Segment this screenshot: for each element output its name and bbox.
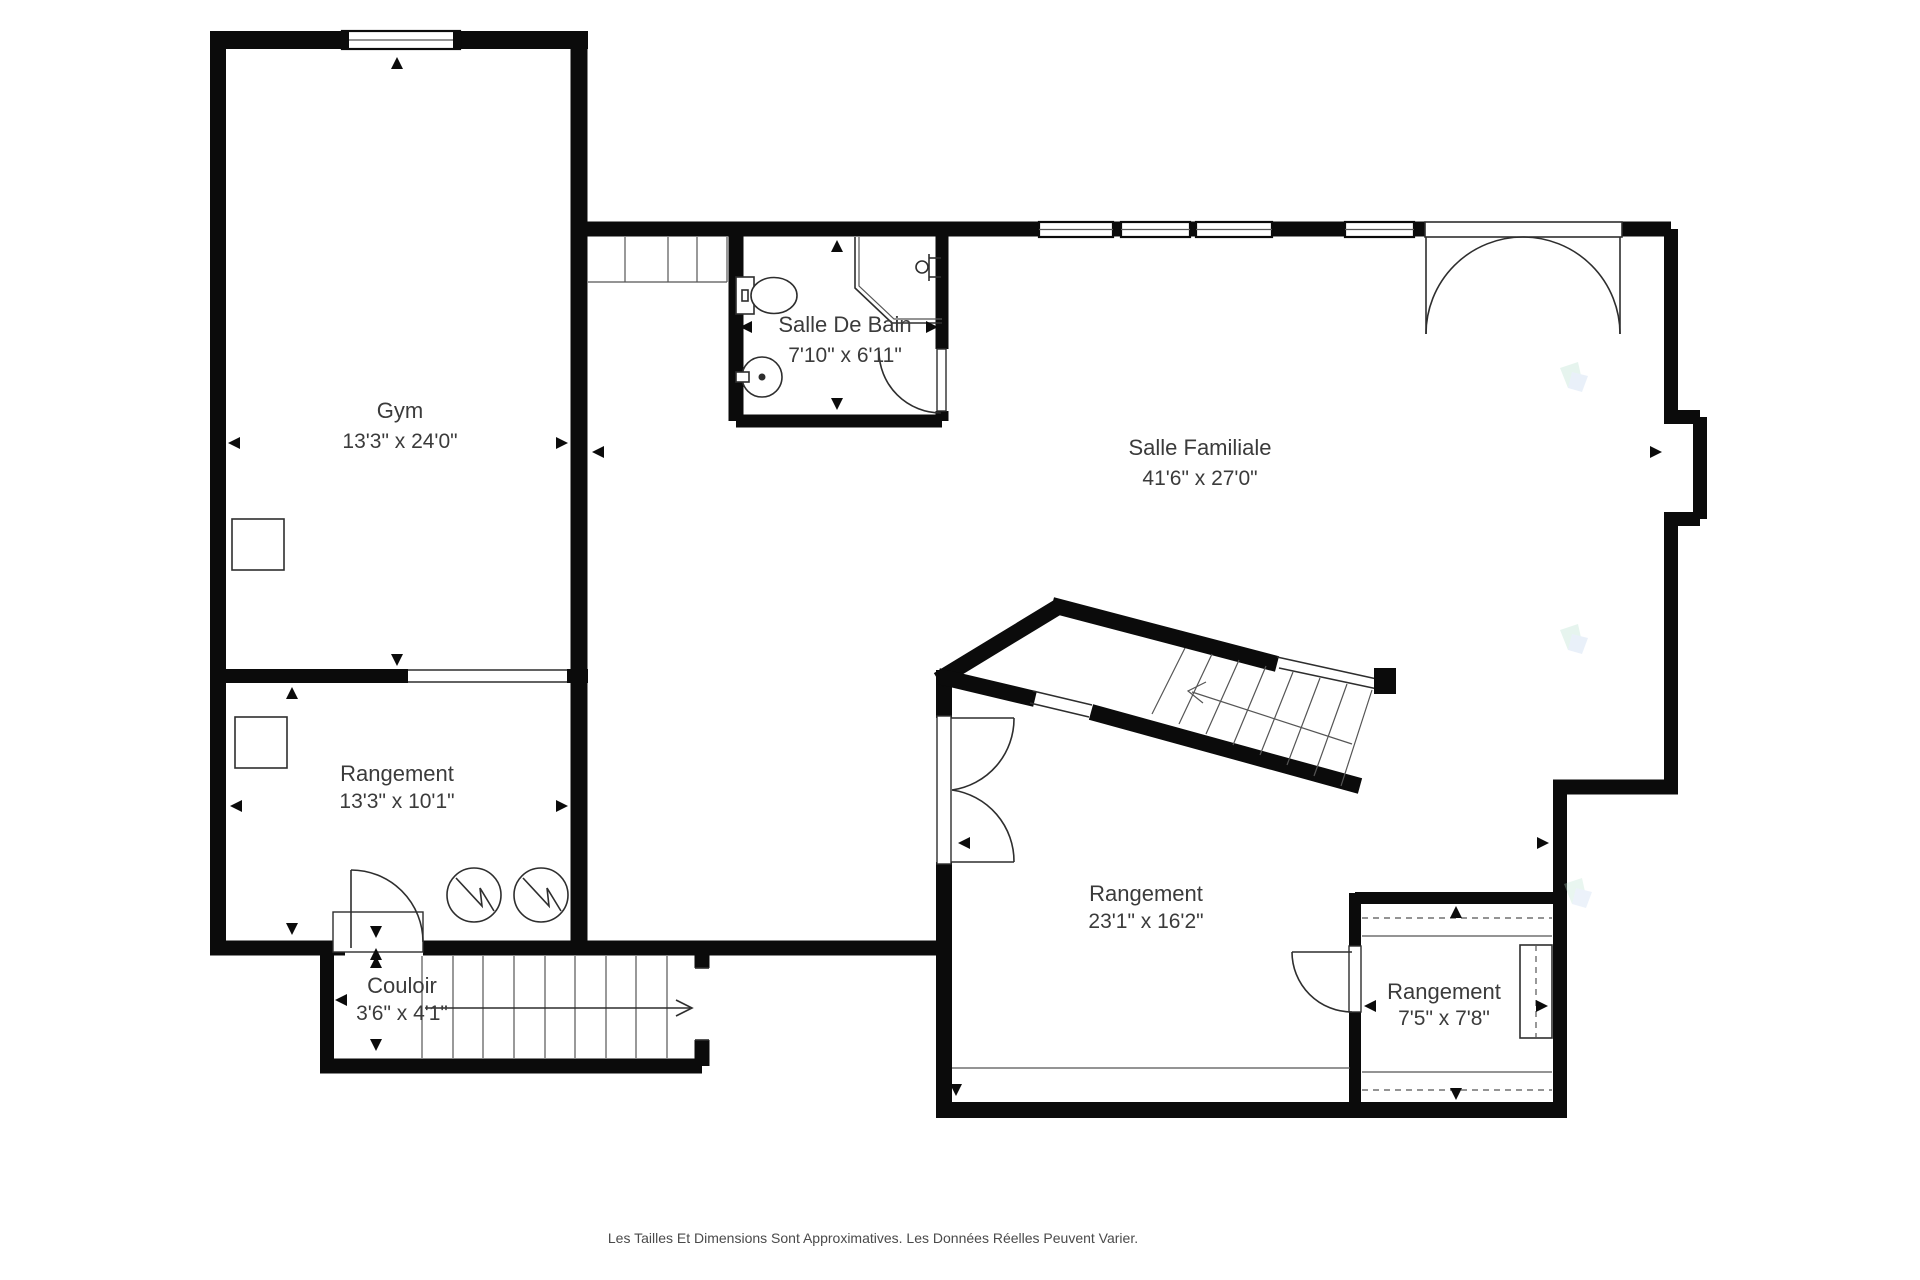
floor-plan-canvas: Gym 13'3" x 24'0" Salle De Bain 7'10" x … (0, 0, 1920, 1280)
door-icon (333, 870, 423, 960)
upper-stairs (588, 237, 727, 282)
room-label-rangement-est: Rangement (1387, 979, 1501, 1004)
cased-opening (408, 670, 567, 682)
door-icon (1292, 946, 1361, 1012)
room-dim-rangement-est: 7'5" x 7'8" (1398, 1007, 1490, 1030)
room-label-rangement-central: Rangement (1089, 881, 1203, 906)
column-icon (235, 717, 287, 768)
wall (1664, 417, 1700, 787)
room-dim-rangement-ouest: 13'3" x 10'1" (339, 790, 454, 813)
windows (342, 31, 1414, 237)
window-icon (1196, 222, 1272, 237)
column-icon (232, 519, 284, 570)
wall (1052, 605, 1277, 664)
room-label-couloir: Couloir (367, 973, 437, 998)
disclaimer-text: Les Tailles Et Dimensions Sont Approxima… (608, 1230, 1138, 1246)
central-room-walls (938, 605, 1560, 1110)
french-door-icon (1425, 222, 1622, 334)
window-icon (1345, 222, 1414, 237)
room-label-rangement-ouest: Rangement (340, 761, 454, 786)
shower-icon (855, 237, 942, 323)
room-dim-salle-familiale: 41'6" x 27'0" (1142, 467, 1257, 490)
watermark-icon (1560, 362, 1588, 392)
wall (938, 676, 1035, 699)
double-door-icon (937, 716, 1014, 864)
wall (1091, 712, 1360, 786)
exterior-walls (210, 31, 1700, 1110)
closet-shelving (1362, 918, 1552, 1090)
room-label-gym: Gym (377, 398, 423, 423)
room-dim-rangement-central: 23'1" x 16'2" (1088, 910, 1203, 933)
cased-opening (1030, 691, 1092, 717)
watermark-icon (1564, 878, 1592, 908)
newel-post (1374, 668, 1396, 694)
utility-symbol-icon (447, 868, 501, 922)
room-dim-gym: 13'3" x 24'0" (342, 430, 457, 453)
watermark-icon (1560, 624, 1588, 654)
utility-symbol-icon (514, 868, 568, 922)
room-label-salle-familiale: Salle Familiale (1128, 435, 1271, 460)
toilet-icon (736, 277, 797, 314)
window-icon (342, 31, 460, 49)
room-dim-salle-de-bain: 7'10" x 6'11" (788, 344, 902, 367)
room-dim-couloir: 3'6" x 4'1" (356, 1002, 448, 1025)
cased-opening (695, 968, 709, 1040)
window-icon (1121, 222, 1190, 237)
couloir-stairs (422, 956, 692, 1058)
wall (938, 607, 1058, 680)
room-label-salle-de-bain: Salle De Bain (778, 312, 911, 337)
window-icon (1039, 222, 1113, 237)
